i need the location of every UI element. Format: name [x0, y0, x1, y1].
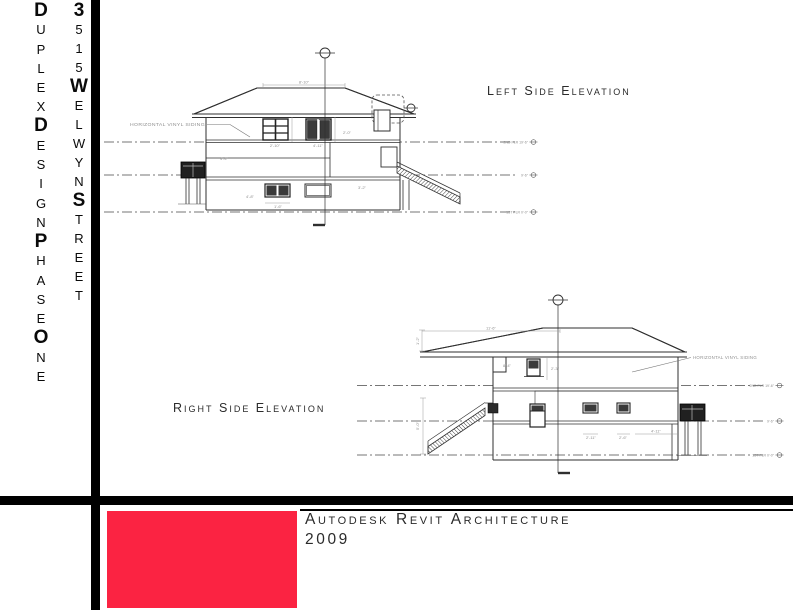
- vertical-letter: E: [37, 136, 46, 155]
- svg-text:4'-4": 4'-4": [220, 156, 229, 161]
- svg-text:4'-8": 4'-8": [246, 194, 255, 199]
- svg-text:8'-4": 8'-4": [503, 363, 512, 368]
- vertical-letter: W: [70, 77, 88, 96]
- left-elevation-drawing: 2ND FLR 19'-6" 9'-6" 1ST FLR 0'-0" 8'-10…: [100, 38, 545, 238]
- vertical-letter: E: [75, 267, 84, 286]
- vertical-letter: E: [75, 96, 84, 115]
- siding-label: HORIZONTAL VINYL SIDING: [130, 122, 205, 127]
- vertical-letter: T: [75, 210, 83, 229]
- svg-text:2'-0": 2'-0": [343, 130, 352, 135]
- svg-text:1'-6": 1'-6": [274, 204, 283, 209]
- svg-text:2'-11": 2'-11": [586, 435, 596, 440]
- level-label: 2ND FLR 19'-6": [750, 384, 775, 388]
- sheet-background: { "sidebar": { "column1": {"text": "DUPL…: [0, 0, 793, 613]
- vertical-letter: O: [34, 328, 49, 347]
- level-label: 9'-6": [767, 419, 775, 423]
- level-label: 1ST FLR 0'-0": [752, 453, 775, 457]
- software-name: Autodesk Revit Architecture: [305, 511, 571, 529]
- ac-unit: [677, 404, 707, 456]
- svg-text:4'-11": 4'-11": [313, 143, 323, 148]
- vertical-letter: 5: [75, 58, 82, 77]
- ac-unit: [178, 162, 206, 204]
- right-elevation-title: Right Side Elevation: [173, 401, 325, 415]
- svg-text:2'-3": 2'-3": [551, 366, 560, 371]
- siding-label: HORIZONTAL VINYL SIDING: [693, 355, 757, 360]
- stairs: [428, 403, 498, 455]
- vertical-letter: Y: [75, 153, 84, 172]
- vertical-letter: 3: [74, 1, 85, 20]
- vertical-letter: S: [73, 191, 86, 210]
- stairs: [397, 162, 460, 204]
- vertical-letter: H: [36, 251, 45, 270]
- vertical-letter: U: [36, 20, 45, 39]
- vertical-letter: W: [73, 134, 85, 153]
- vertical-letter: E: [37, 309, 46, 328]
- right-elevation-drawing: 2ND FLR 19'-6" 9'-6" 1ST FLR 0'-0" 2'-3": [355, 290, 793, 485]
- vertical-letter: I: [39, 174, 43, 193]
- vertical-letter: X: [37, 97, 46, 116]
- vertical-divider-bar: [91, 0, 100, 610]
- level-label: 1ST FLR 0'-0": [506, 210, 529, 214]
- svg-text:2'-10": 2'-10": [270, 143, 281, 148]
- level-label: 2ND FLR 19'-6": [504, 140, 529, 144]
- svg-text:5'-0": 5'-0": [415, 421, 420, 430]
- vertical-letter: D: [34, 1, 48, 20]
- vertical-letter: D: [34, 117, 48, 136]
- horizontal-divider-bar: [0, 496, 793, 505]
- svg-text:4'-11": 4'-11": [651, 429, 661, 434]
- vertical-letter: N: [36, 213, 45, 232]
- house-outline: [420, 328, 687, 460]
- vertical-letter: R: [74, 229, 83, 248]
- vertical-letter: N: [74, 172, 83, 191]
- vertical-letter: S: [37, 155, 46, 174]
- software-year: 2009: [305, 531, 350, 549]
- svg-text:1'-2": 1'-2": [415, 336, 420, 345]
- svg-text:3'-2": 3'-2": [358, 185, 367, 190]
- vertical-letter: 5: [75, 20, 82, 39]
- vertical-letter: N: [36, 348, 45, 367]
- svg-text:2'-6": 2'-6": [619, 435, 628, 440]
- svg-text:11'-6": 11'-6": [486, 326, 496, 331]
- project-title-vertical: DUPLEXDESIGNPHASEONE: [23, 1, 59, 386]
- vertical-letter: S: [37, 290, 46, 309]
- level-label: 9'-6": [521, 173, 529, 177]
- red-accent-rectangle: [107, 511, 297, 608]
- vertical-letter: L: [75, 115, 82, 134]
- vertical-letter: E: [75, 248, 84, 267]
- svg-text:8'-10": 8'-10": [299, 80, 310, 85]
- vertical-letter: L: [37, 59, 44, 78]
- vertical-letter: 1: [75, 39, 82, 58]
- vertical-letter: E: [37, 367, 46, 386]
- vertical-letter: T: [75, 286, 83, 305]
- vertical-letter: P: [37, 40, 46, 59]
- vertical-letter: G: [36, 194, 46, 213]
- vertical-letter: P: [35, 232, 48, 251]
- vertical-letter: A: [37, 271, 46, 290]
- vertical-letter: E: [37, 78, 46, 97]
